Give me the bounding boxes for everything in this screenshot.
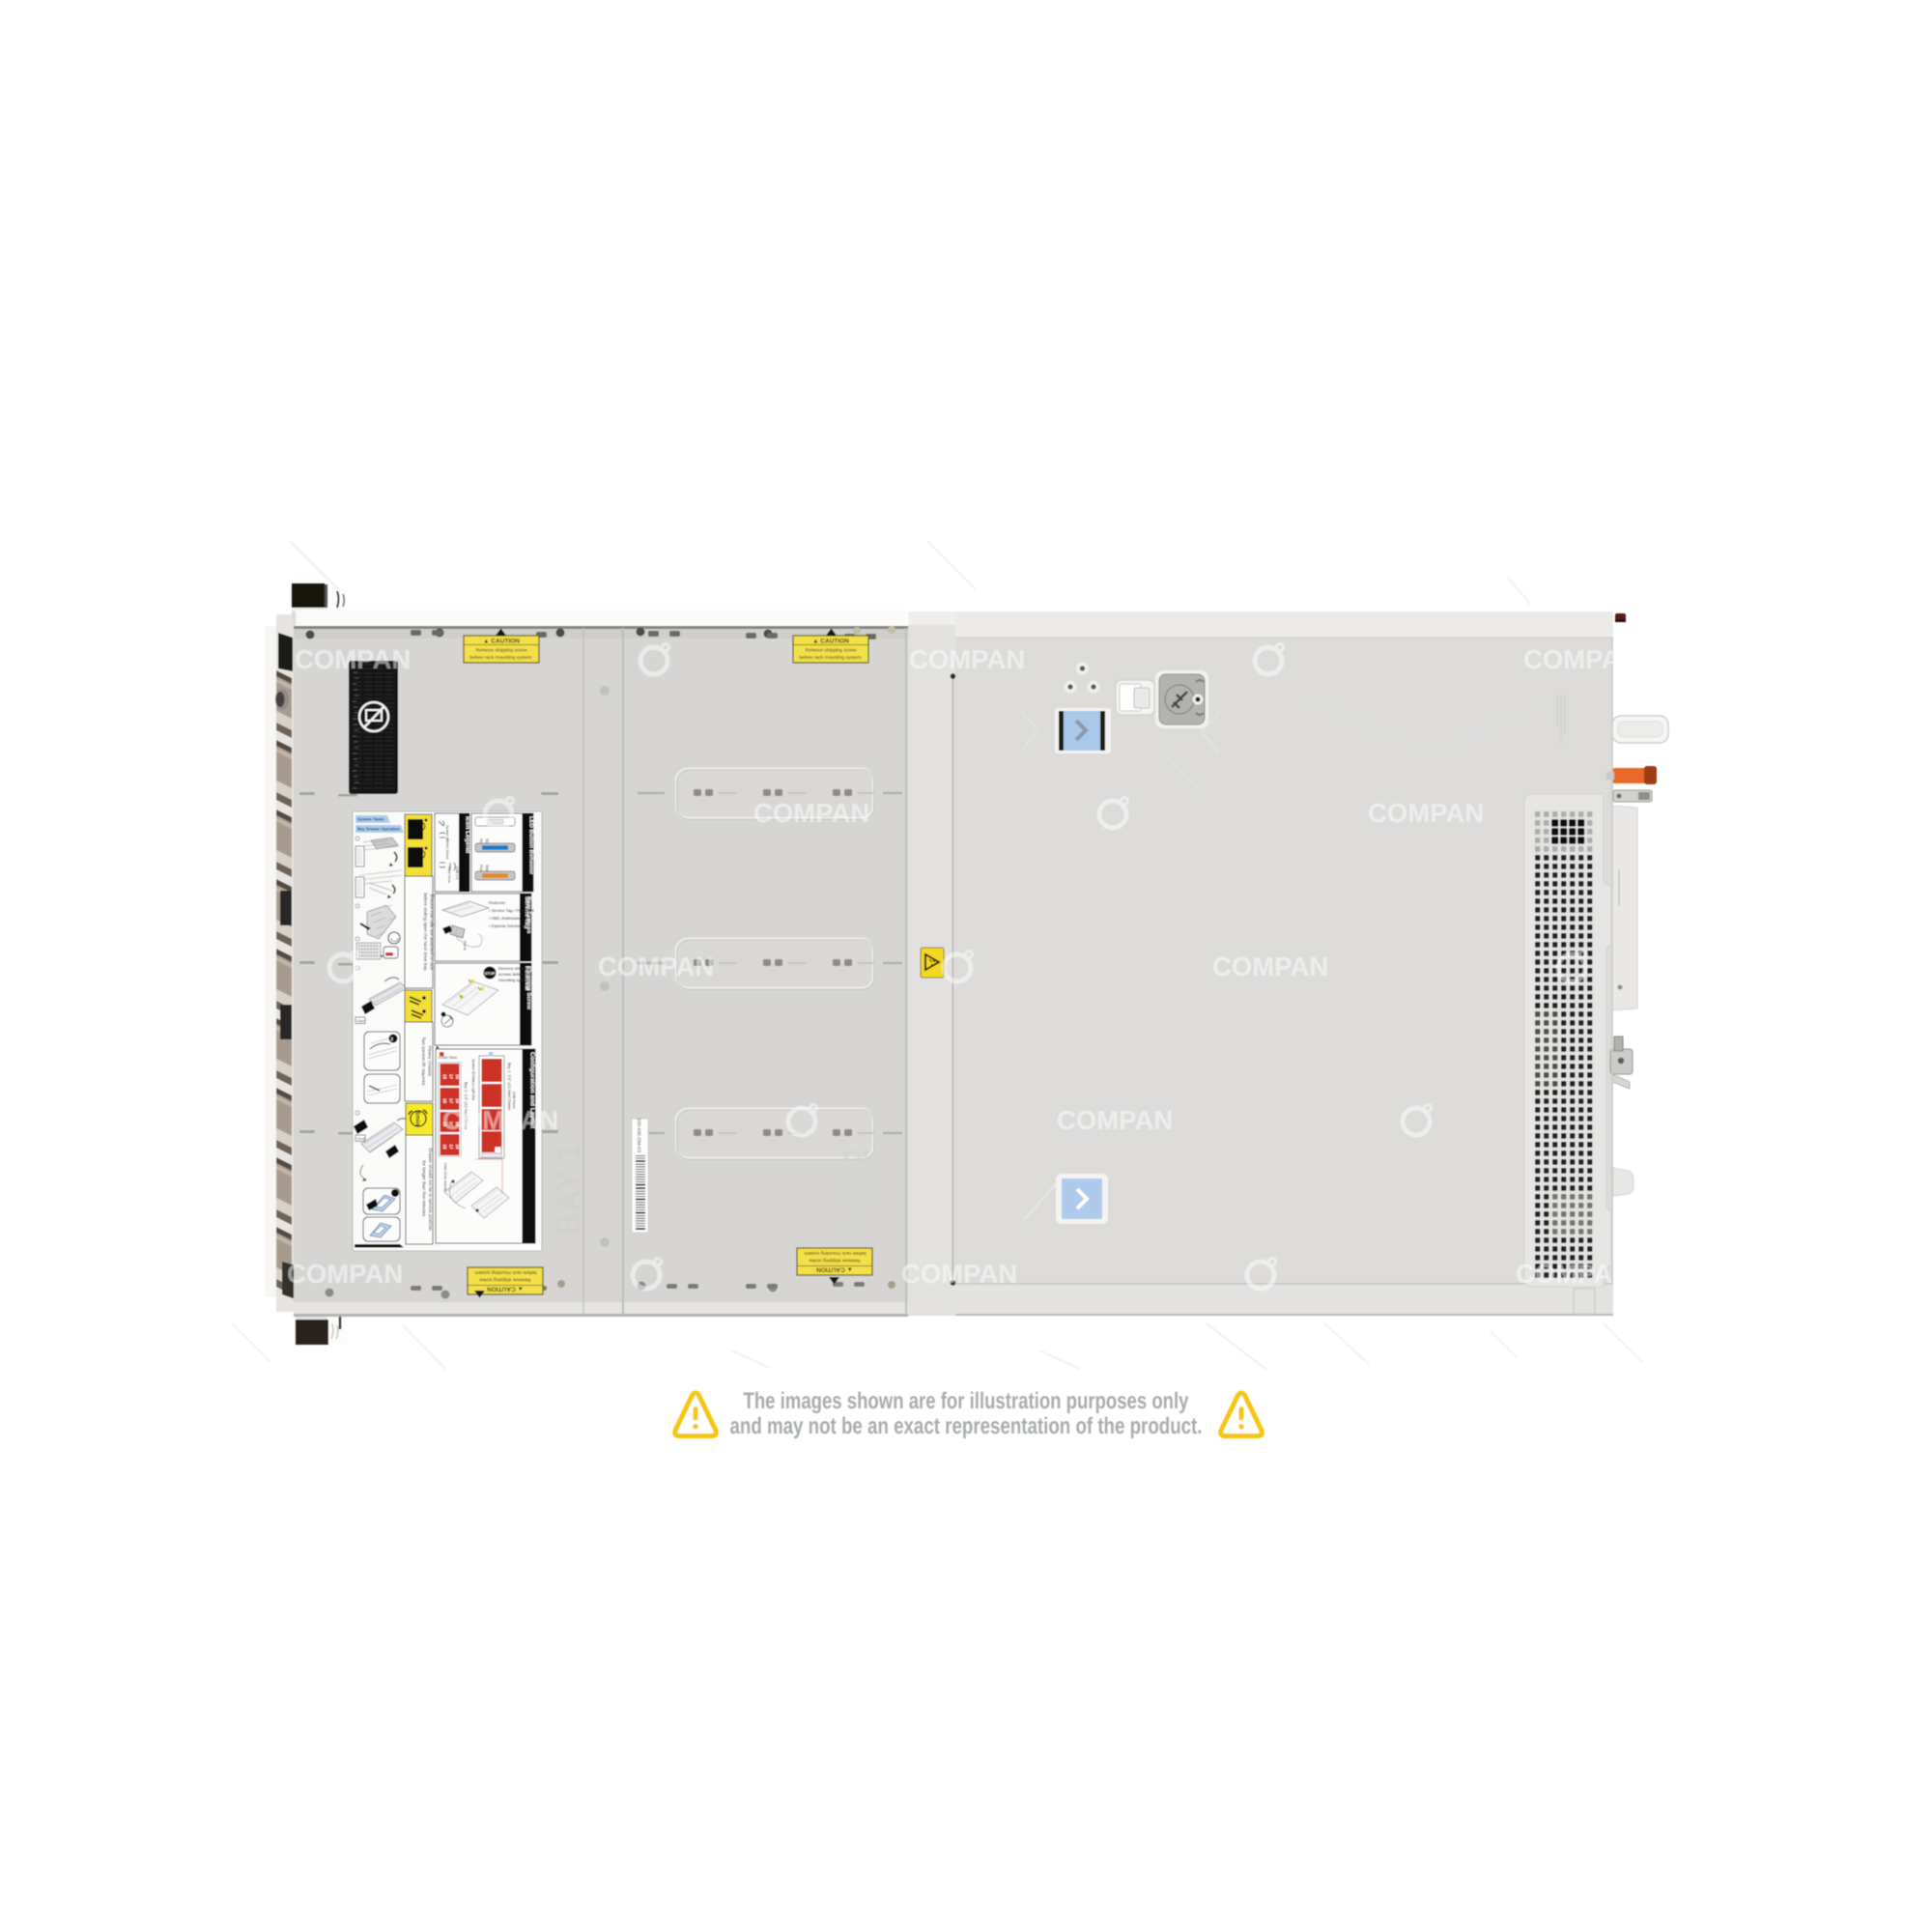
svg-text:Remove shipping screw: Remove shipping screw bbox=[479, 1277, 530, 1283]
svg-text:Remove shipping: Remove shipping bbox=[498, 966, 530, 971]
svg-text:▲ CAUTION: ▲ CAUTION bbox=[487, 1286, 524, 1293]
svg-text:17: 17 bbox=[449, 1098, 454, 1104]
svg-text:Open: Open bbox=[357, 1019, 366, 1023]
svg-text:Remove shipping screw: Remove shipping screw bbox=[805, 648, 856, 654]
svg-text:USB 2.0: USB 2.0 bbox=[455, 867, 459, 879]
svg-text:Remove shipping screw: Remove shipping screw bbox=[475, 648, 526, 654]
svg-text:before sliding open the hard d: before sliding open the hard drive bay. bbox=[422, 893, 428, 971]
svg-text:18: 18 bbox=[442, 1074, 447, 1080]
svg-text:• Service Tag • Password: • Service Tag • Password bbox=[489, 908, 534, 913]
svg-text:COMPAN: COMPAN bbox=[901, 1259, 1017, 1289]
svg-text:18: 18 bbox=[442, 1098, 447, 1104]
svg-text:before rack mounting system.: before rack mounting system. bbox=[799, 655, 863, 661]
svg-text:▲ CAUTION: ▲ CAUTION bbox=[483, 639, 520, 645]
svg-text:18: 18 bbox=[442, 1144, 447, 1150]
svg-text:COMPAN: COMPAN bbox=[1368, 798, 1484, 828]
svg-text:STOP: STOP bbox=[485, 971, 496, 976]
svg-text:BAY 2: BAY 2 bbox=[838, 1148, 875, 1240]
svg-text:▲ CAUTION: ▲ CAUTION bbox=[812, 639, 849, 645]
svg-text:System ID/Status Light Bar: System ID/Status Light Bar bbox=[471, 1059, 475, 1101]
svg-text:COMPAN: COMPAN bbox=[598, 952, 714, 981]
svg-text:Hard Drive: Hard Drive bbox=[447, 867, 451, 883]
svg-text:Bay Drawer Operation: Bay Drawer Operation bbox=[357, 827, 400, 832]
svg-text:5min: 5min bbox=[414, 1111, 421, 1125]
svg-text:COMPAN: COMPAN bbox=[1523, 644, 1639, 674]
svg-text:COMPAN: COMPAN bbox=[442, 1105, 558, 1135]
svg-text:before rack mounting system.: before rack mounting system. bbox=[803, 1250, 867, 1256]
svg-text:COMPAN: COMPAN bbox=[753, 798, 869, 828]
svg-text:Heavy chassis.: Heavy chassis. bbox=[427, 1046, 433, 1077]
svg-text:Pull to: Pull to bbox=[463, 941, 467, 951]
svg-text:Icon Legend: Icon Legend bbox=[465, 816, 471, 853]
svg-text:iDRAC Direct: iDRAC Direct bbox=[445, 838, 449, 859]
svg-text:COMPAN: COMPAN bbox=[1516, 1259, 1632, 1289]
svg-text:17: 17 bbox=[449, 1144, 454, 1150]
svg-text:COMPAN: COMPAN bbox=[1057, 1105, 1173, 1135]
svg-text:LED Button Behavior: LED Button Behavior bbox=[527, 816, 534, 875]
svg-text:and may not be an exact repres: and may not be an exact representation o… bbox=[730, 1413, 1203, 1439]
svg-text:Remove shipping screw: Remove shipping screw bbox=[809, 1258, 860, 1264]
svg-text:17: 17 bbox=[449, 1074, 454, 1080]
svg-text:The images shown are for illus: The images shown are for illustration pu… bbox=[744, 1388, 1190, 1414]
svg-text:Close: Close bbox=[357, 1137, 366, 1141]
svg-text:for longer than five minutes.: for longer than five minutes. bbox=[421, 1160, 427, 1217]
svg-text:System Tasks: System Tasks bbox=[357, 817, 384, 822]
svg-text:16: 16 bbox=[455, 1098, 460, 1104]
svg-text:• HMC Addresses: • HMC Addresses bbox=[489, 916, 521, 921]
svg-text:16: 16 bbox=[455, 1144, 460, 1150]
svg-text:BAY 1: BAY 1 bbox=[551, 1144, 587, 1236]
svg-text:16: 16 bbox=[455, 1074, 460, 1080]
svg-text:COMPAN: COMPAN bbox=[295, 644, 411, 674]
svg-text:Bay 1: 3.5” x12 Hard Drives: Bay 1: 3.5” x12 Hard Drives bbox=[507, 1063, 512, 1110]
svg-text:Drawer should not be in servic: Drawer should not be in service position bbox=[427, 1148, 433, 1230]
svg-text:Two person lift required.: Two person lift required. bbox=[420, 1037, 426, 1086]
svg-text:COMPAN: COMPAN bbox=[909, 644, 1025, 674]
svg-text:Ensure that rails are attached: Ensure that rails are attached to rack bbox=[429, 895, 435, 971]
svg-text:• Express Service Code: • Express Service Code bbox=[489, 923, 532, 928]
svg-text:screws before rack: screws before rack bbox=[498, 972, 533, 977]
svg-text:Hard Drive Activity: Hard Drive Activity bbox=[443, 1163, 447, 1192]
svg-text:COMPAN: COMPAN bbox=[287, 1259, 403, 1289]
svg-text:▲ CAUTION: ▲ CAUTION bbox=[816, 1266, 853, 1273]
svg-text:100-400-294-03: 100-400-294-03 bbox=[636, 1118, 641, 1152]
svg-text:Features:: Features: bbox=[489, 900, 506, 905]
svg-text:mounting system.: mounting system. bbox=[498, 978, 530, 982]
svg-text:COMPAN: COMPAN bbox=[1212, 952, 1328, 981]
svg-text:before rack mounting system.: before rack mounting system. bbox=[473, 1269, 537, 1275]
svg-text:before rack mounting system.: before rack mounting system. bbox=[469, 655, 533, 661]
